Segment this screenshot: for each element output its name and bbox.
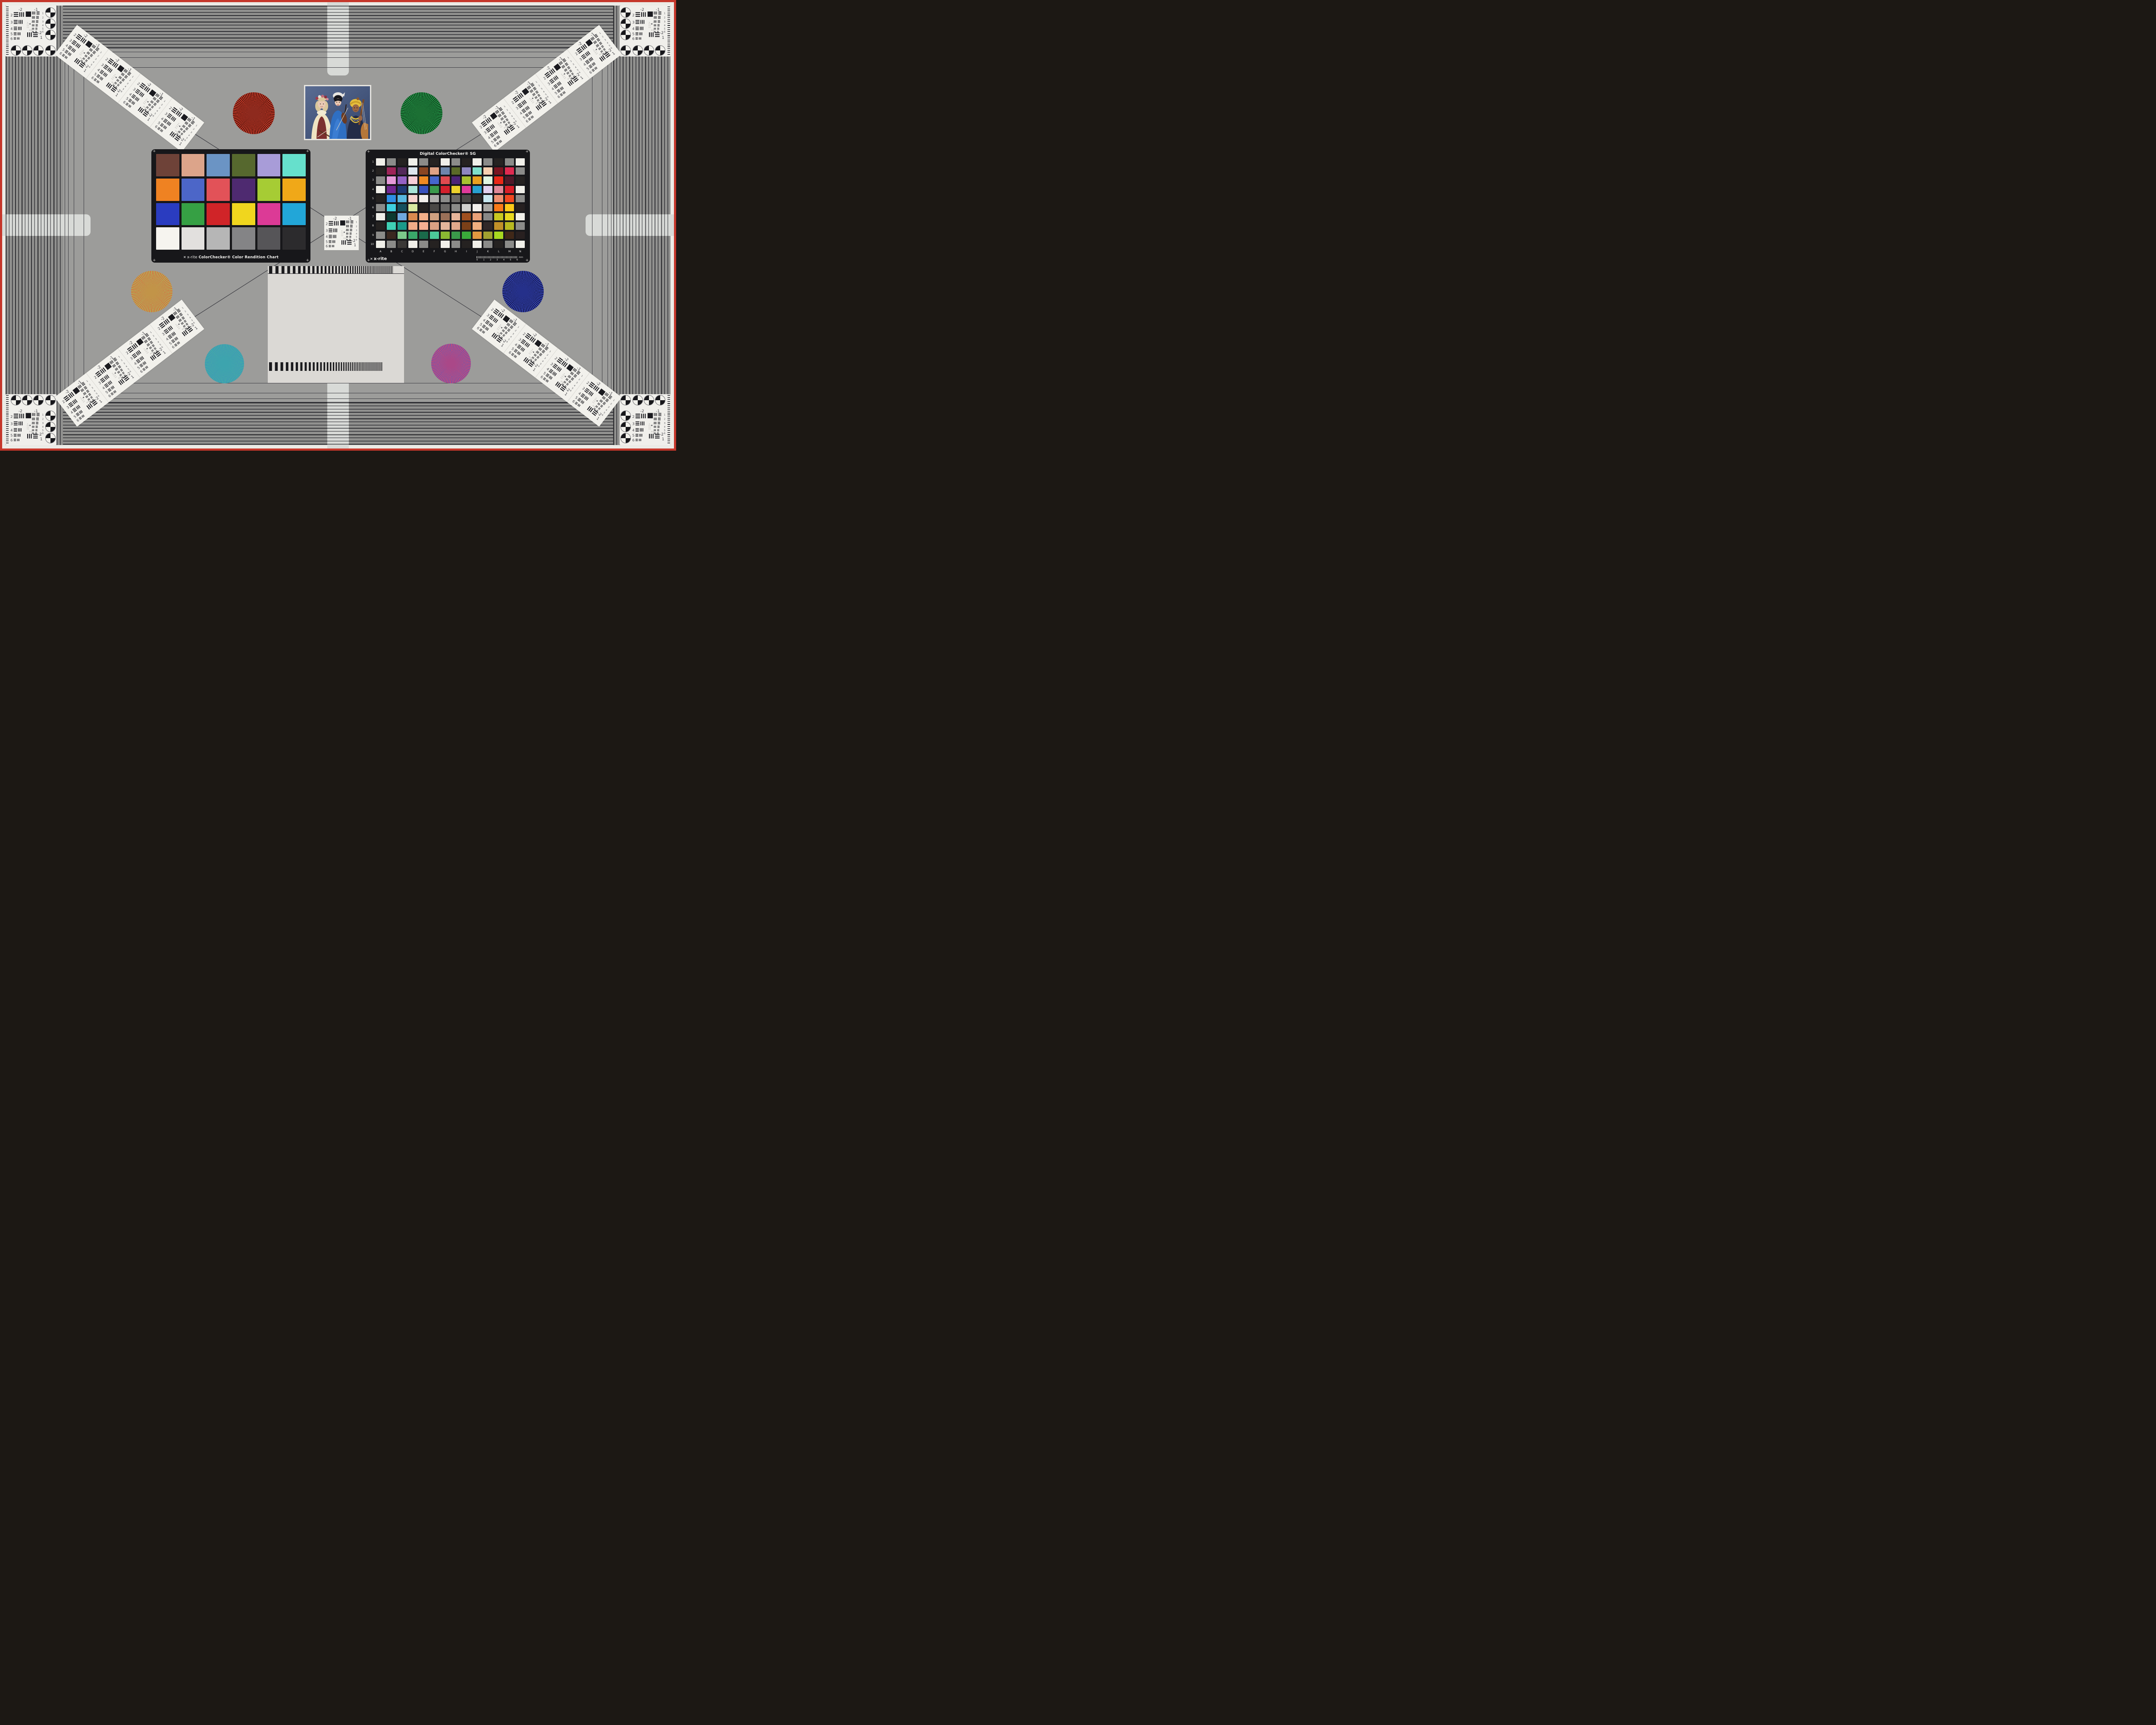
- svg-text:0: 0: [114, 74, 116, 75]
- svg-text:5: 5: [664, 28, 665, 30]
- color-patch: [505, 195, 514, 202]
- svg-text:6: 6: [571, 399, 576, 404]
- svg-text:-2: -2: [352, 239, 356, 243]
- color-patch: [505, 186, 514, 193]
- color-patch: [419, 186, 428, 193]
- svg-text:-1: -1: [95, 43, 100, 48]
- frequency-sweep-chart: [268, 266, 404, 383]
- svg-text:0: 0: [178, 122, 179, 124]
- registration-plus-mark: +: [153, 150, 156, 153]
- svg-text:3: 3: [42, 21, 44, 23]
- corner-target-card-br: -2-123456123456-2101: [620, 394, 671, 445]
- svg-text:6: 6: [107, 393, 112, 398]
- color-patch: [376, 195, 385, 202]
- crossbar-top-stripes: [327, 6, 349, 48]
- chart-title: ColorChecker® Color Rendition Chart: [199, 255, 279, 260]
- color-patch: [398, 222, 407, 229]
- ruler-ticks-icon: [667, 395, 670, 444]
- svg-text:6: 6: [91, 75, 95, 80]
- svg-text:0: 0: [342, 230, 342, 232]
- color-patch: [430, 167, 439, 175]
- color-patch: [376, 167, 385, 175]
- brand-text: x-rite: [374, 257, 387, 261]
- registration-plus-mark: +: [153, 259, 156, 262]
- color-patch: [462, 167, 471, 175]
- color-patch: [483, 204, 492, 211]
- color-patch: [430, 241, 439, 248]
- svg-text:1: 1: [595, 417, 600, 421]
- color-patch: [376, 222, 385, 229]
- pinwheel-fiducial-icon: [45, 30, 56, 40]
- corner-target-card-bl: -2-123456123456-2101: [6, 394, 56, 445]
- color-patch: [516, 204, 525, 211]
- color-patch: [462, 158, 471, 166]
- svg-text:3: 3: [132, 87, 136, 91]
- color-patch: [182, 179, 205, 201]
- color-patch: [441, 158, 450, 166]
- svg-text:-1: -1: [656, 8, 660, 12]
- color-patch: [398, 195, 407, 202]
- svg-text:4: 4: [97, 68, 101, 72]
- svg-text:2: 2: [356, 225, 357, 228]
- svg-text:6: 6: [508, 350, 512, 355]
- sg-col-label: G: [441, 250, 450, 253]
- siemens-star-blue-star: [502, 271, 544, 312]
- color-patch: [473, 213, 482, 220]
- svg-text:-1: -1: [576, 366, 581, 372]
- usaf-resolution-target: -2-123456123456-2101: [9, 6, 45, 43]
- svg-text:0: 0: [649, 423, 650, 425]
- svg-text:1: 1: [662, 437, 664, 442]
- svg-text:6: 6: [525, 119, 529, 123]
- registration-plus-mark: +: [367, 259, 370, 262]
- svg-text:1: 1: [664, 414, 665, 416]
- color-patch: [419, 158, 428, 166]
- sg-row-label: 8: [370, 222, 374, 229]
- svg-text:0: 0: [564, 373, 565, 375]
- svg-text:1: 1: [150, 331, 152, 334]
- pinwheel-fiducial-icon: [620, 433, 631, 443]
- svg-text:-2: -2: [660, 433, 664, 437]
- color-patch: [282, 203, 306, 226]
- color-patch: [441, 241, 450, 248]
- color-patch: [473, 176, 482, 184]
- color-patch: [462, 186, 471, 193]
- color-patch: [516, 186, 525, 193]
- svg-text:0: 0: [529, 98, 531, 100]
- svg-text:6: 6: [493, 143, 497, 148]
- sg-row-label: 7: [370, 213, 374, 220]
- color-patch: [441, 167, 450, 175]
- svg-text:1: 1: [162, 350, 167, 355]
- svg-text:2: 2: [610, 403, 612, 406]
- pinwheel-fiducial-icon: [644, 395, 654, 405]
- svg-text:2: 2: [632, 414, 634, 419]
- svg-text:1: 1: [532, 367, 536, 372]
- color-patch: [408, 213, 417, 220]
- usaf-resolution-target: -2-123456123456-2101: [9, 408, 45, 444]
- color-patch: [408, 222, 417, 229]
- color-patch: [441, 195, 450, 202]
- svg-text:3: 3: [604, 39, 607, 42]
- color-patch: [419, 167, 428, 175]
- svg-text:4: 4: [124, 85, 126, 88]
- svg-text:2: 2: [546, 354, 548, 357]
- pinwheel-fiducial-icon: [45, 433, 56, 443]
- pinwheel-fiducial-icon: [620, 45, 631, 56]
- svg-text:3: 3: [326, 229, 328, 233]
- svg-text:-1: -1: [348, 217, 352, 221]
- svg-text:1: 1: [163, 100, 166, 103]
- svg-text:4: 4: [157, 341, 160, 344]
- svg-text:-2: -2: [640, 8, 644, 12]
- svg-text:4: 4: [543, 91, 545, 94]
- svg-text:-1: -1: [190, 116, 196, 122]
- svg-text:-2: -2: [160, 316, 166, 322]
- color-patch: [505, 176, 514, 184]
- svg-text:1: 1: [31, 22, 32, 23]
- iso-test-chart: -2-123456123456-2101 -2-123456123456-210…: [0, 0, 676, 451]
- svg-text:3: 3: [94, 58, 97, 61]
- ruler-number: 4: [503, 259, 505, 261]
- color-patch: [387, 204, 396, 211]
- svg-text:1: 1: [564, 392, 568, 397]
- svg-text:6: 6: [75, 418, 80, 423]
- svg-text:1: 1: [31, 423, 32, 425]
- svg-text:6: 6: [664, 432, 665, 435]
- color-patch: [505, 232, 514, 239]
- svg-text:-2: -2: [65, 389, 70, 395]
- sweep-gradient-area: [268, 273, 404, 362]
- svg-text:3: 3: [581, 386, 586, 391]
- pinwheel-fiducial-icon: [22, 45, 32, 56]
- svg-text:5: 5: [632, 32, 634, 36]
- svg-text:1: 1: [548, 100, 553, 105]
- color-patch: [494, 195, 503, 202]
- color-patch: [430, 213, 439, 220]
- color-patch: [207, 179, 230, 201]
- color-patch: [376, 232, 385, 239]
- svg-text:4: 4: [541, 360, 544, 363]
- svg-text:2: 2: [326, 222, 328, 226]
- ruler-number: 0: [476, 259, 478, 261]
- svg-text:5: 5: [42, 429, 44, 432]
- color-patch: [505, 167, 514, 175]
- color-patch: [483, 176, 492, 184]
- svg-text:4: 4: [482, 318, 486, 323]
- svg-text:0: 0: [649, 22, 650, 23]
- svg-text:-2: -2: [19, 8, 22, 12]
- svg-text:1: 1: [86, 380, 89, 383]
- svg-text:6: 6: [540, 374, 544, 379]
- color-patch: [494, 241, 503, 248]
- ruler-number: 5: [510, 259, 511, 261]
- color-patch: [156, 203, 179, 226]
- svg-text:-1: -1: [109, 355, 114, 361]
- color-patch: [419, 195, 428, 202]
- color-patch: [473, 195, 482, 202]
- svg-text:1: 1: [611, 51, 616, 56]
- svg-text:0: 0: [146, 98, 148, 100]
- color-patch: [462, 213, 471, 220]
- svg-text:4: 4: [10, 26, 13, 31]
- svg-text:3: 3: [164, 111, 168, 116]
- svg-text:-2: -2: [514, 90, 519, 96]
- svg-text:1: 1: [146, 117, 151, 122]
- usaf-resolution-target: -2-123456123456-2101: [631, 408, 667, 444]
- svg-text:4: 4: [605, 409, 608, 412]
- svg-text:4: 4: [632, 428, 634, 432]
- svg-text:2: 2: [89, 383, 91, 386]
- svg-text:1: 1: [516, 125, 521, 129]
- color-patch: [282, 154, 306, 176]
- color-patch: [408, 176, 417, 184]
- svg-text:4: 4: [188, 134, 190, 137]
- color-patch: [182, 203, 205, 226]
- svg-text:0: 0: [561, 73, 562, 75]
- sg-col-label: C: [398, 250, 407, 253]
- registration-plus-mark: +: [306, 150, 309, 153]
- svg-text:1: 1: [195, 124, 197, 127]
- color-patch: [232, 203, 255, 226]
- svg-text:2: 2: [570, 60, 572, 63]
- svg-text:1: 1: [131, 375, 135, 379]
- svg-text:3: 3: [540, 88, 543, 91]
- color-patch: [156, 154, 179, 176]
- color-patch: [207, 154, 230, 176]
- ruler-numbers: 0123456: [476, 259, 518, 261]
- svg-text:1: 1: [535, 81, 538, 84]
- color-patch: [419, 213, 428, 220]
- sg-col-label: J: [473, 250, 482, 253]
- svg-text:4: 4: [65, 43, 69, 48]
- color-patch: [483, 167, 492, 175]
- pinwheel-fiducial-icon: [45, 19, 56, 29]
- svg-text:5: 5: [326, 240, 328, 244]
- svg-text:3: 3: [486, 313, 490, 317]
- color-patch: [473, 222, 482, 229]
- svg-text:-1: -1: [126, 67, 132, 73]
- color-patch: [419, 176, 428, 184]
- pinwheel-fiducial-icon: [644, 45, 654, 56]
- siemens-star-red-star: [233, 92, 275, 134]
- svg-text:2: 2: [664, 418, 665, 421]
- color-patch: [505, 222, 514, 229]
- svg-text:1: 1: [653, 423, 654, 425]
- color-patch: [207, 227, 230, 250]
- color-patch: [494, 213, 503, 220]
- bar-pattern-bottom: [268, 362, 404, 371]
- svg-text:2: 2: [160, 103, 163, 107]
- pinwheel-fiducial-icon: [620, 395, 631, 405]
- color-patch: [387, 213, 396, 220]
- svg-text:0: 0: [500, 324, 501, 326]
- color-patch: [387, 186, 396, 193]
- svg-text:-1: -1: [608, 391, 613, 396]
- svg-text:1: 1: [82, 69, 87, 73]
- color-patch: [156, 227, 179, 250]
- sg-col-label: N: [516, 250, 525, 253]
- svg-text:5: 5: [10, 32, 13, 36]
- color-patch: [387, 241, 396, 248]
- svg-text:4: 4: [156, 110, 158, 113]
- pinwheel-fiducial-icon: [45, 422, 56, 432]
- svg-text:-1: -1: [558, 56, 564, 62]
- svg-text:2: 2: [490, 307, 495, 312]
- color-patch: [516, 195, 525, 202]
- color-patch: [232, 154, 255, 176]
- color-patch: [451, 167, 461, 175]
- color-patch: [483, 213, 492, 220]
- sg-row-label: 2: [370, 167, 374, 175]
- svg-text:2: 2: [136, 81, 141, 86]
- svg-text:4: 4: [511, 115, 514, 118]
- svg-text:4: 4: [356, 233, 357, 235]
- color-patch: [494, 232, 503, 239]
- svg-text:2: 2: [506, 109, 509, 112]
- color-patch: [257, 227, 281, 250]
- svg-text:4: 4: [577, 391, 582, 396]
- color-patch: [441, 222, 450, 229]
- color-patch: [462, 176, 471, 184]
- svg-text:1: 1: [517, 326, 520, 329]
- svg-text:-2: -2: [482, 115, 488, 120]
- color-patch: [398, 213, 407, 220]
- svg-text:-1: -1: [512, 317, 518, 323]
- color-patch: [473, 158, 482, 166]
- corner-target-card-tr: -2-123456123456-2101: [620, 6, 671, 56]
- svg-text:0: 0: [175, 323, 177, 325]
- spacer: [370, 250, 374, 253]
- svg-text:4: 4: [664, 426, 665, 429]
- color-patch: [462, 241, 471, 248]
- pinwheel-fiducial-icon: [620, 7, 631, 18]
- svg-text:3: 3: [607, 406, 610, 409]
- svg-text:1: 1: [40, 36, 43, 40]
- color-patch: [516, 232, 525, 239]
- svg-text:1: 1: [354, 243, 356, 248]
- ruler-unit: mm: [519, 256, 523, 259]
- bar-pattern-top: [268, 266, 404, 273]
- color-patch: [516, 158, 525, 166]
- svg-text:6: 6: [589, 70, 593, 75]
- brand-text: x-rite: [187, 255, 197, 260]
- svg-text:3: 3: [549, 361, 554, 366]
- svg-text:-1: -1: [544, 342, 549, 348]
- svg-text:-2: -2: [96, 365, 102, 370]
- color-patch: [430, 222, 439, 229]
- svg-text:0: 0: [82, 49, 84, 51]
- sg-col-label: D: [408, 250, 417, 253]
- color-patch: [387, 176, 396, 184]
- colorchecker-label: ✕x-rite ColorChecker® Color Rendition Ch…: [151, 255, 310, 260]
- usaf-resolution-target: -2-123456123456-2101: [325, 216, 358, 250]
- svg-text:-1: -1: [172, 307, 178, 312]
- color-patch: [419, 232, 428, 239]
- svg-text:-2: -2: [333, 217, 337, 221]
- svg-text:4: 4: [10, 428, 13, 432]
- svg-text:4: 4: [160, 116, 164, 121]
- pinwheel-fiducial-icon: [11, 395, 21, 405]
- svg-text:4: 4: [42, 426, 44, 429]
- color-patch: [451, 158, 461, 166]
- svg-text:-1: -1: [34, 409, 38, 414]
- color-patch: [462, 204, 471, 211]
- svg-text:2: 2: [184, 310, 187, 313]
- color-patch: [430, 158, 439, 166]
- svg-text:3: 3: [190, 131, 192, 134]
- sg-col-label: M: [505, 250, 514, 253]
- color-patch: [376, 213, 385, 220]
- svg-text:-1: -1: [141, 331, 146, 337]
- color-patch: [483, 241, 492, 248]
- svg-text:6: 6: [10, 438, 13, 442]
- crossbar-top: [327, 2, 349, 75]
- crossbar-left: [2, 214, 91, 236]
- svg-text:3: 3: [632, 422, 634, 426]
- svg-text:1: 1: [99, 399, 103, 404]
- svg-text:6: 6: [326, 245, 328, 248]
- svg-text:-2: -2: [640, 409, 644, 414]
- color-patch: [451, 204, 461, 211]
- registration-plus-mark: +: [367, 151, 370, 153]
- svg-text:6: 6: [632, 36, 634, 41]
- ruler-ticks-icon: [6, 395, 9, 444]
- svg-text:6: 6: [10, 36, 13, 41]
- color-patch: [494, 167, 503, 175]
- color-patch: [376, 241, 385, 248]
- color-patch: [387, 222, 396, 229]
- svg-text:1: 1: [662, 36, 664, 40]
- color-patch: [441, 232, 450, 239]
- svg-text:0: 0: [532, 348, 533, 350]
- color-patch: [451, 241, 461, 248]
- color-patch: [462, 232, 471, 239]
- svg-text:1: 1: [653, 22, 654, 23]
- svg-text:-2: -2: [577, 41, 583, 47]
- svg-text:2: 2: [105, 57, 109, 62]
- color-patch: [494, 204, 503, 211]
- svg-text:2: 2: [42, 418, 44, 421]
- color-patch: [462, 195, 471, 202]
- pinwheel-fiducial-icon: [33, 45, 44, 56]
- svg-text:1: 1: [504, 105, 506, 108]
- svg-text:3: 3: [664, 422, 665, 425]
- pinwheel-fiducial-icon: [45, 411, 56, 421]
- pinwheel-fiducial-icon: [45, 395, 56, 405]
- color-patch: [376, 186, 385, 193]
- svg-text:-2: -2: [128, 341, 134, 346]
- ruler-number: 2: [490, 259, 491, 261]
- color-patch: [419, 204, 428, 211]
- svg-text:3: 3: [158, 107, 160, 110]
- registration-plus-mark: +: [306, 259, 309, 262]
- svg-text:2: 2: [42, 17, 44, 19]
- pinwheel-fiducial-icon: [655, 395, 665, 405]
- sg-row-label: 6: [370, 204, 374, 211]
- svg-text:4: 4: [664, 25, 665, 27]
- color-patch: [451, 176, 461, 184]
- svg-text:3: 3: [512, 332, 514, 336]
- svg-text:4: 4: [574, 66, 577, 69]
- svg-text:4: 4: [510, 336, 512, 339]
- svg-text:-1: -1: [656, 409, 660, 414]
- svg-text:2: 2: [664, 17, 665, 19]
- xrite-logo-icon: ✕: [183, 255, 186, 259]
- svg-text:0: 0: [497, 122, 499, 124]
- svg-text:4: 4: [326, 235, 328, 239]
- svg-text:1: 1: [500, 343, 505, 348]
